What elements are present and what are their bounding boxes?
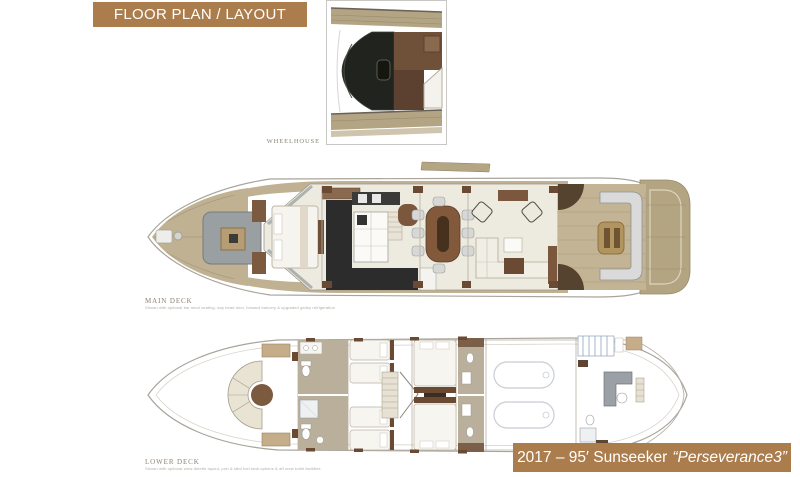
caption-year-model: 2017 – 95′ Sunseeker bbox=[517, 449, 667, 467]
title-banner-label: FLOOR PLAN / LAYOUT bbox=[114, 6, 286, 23]
helm-seat bbox=[377, 60, 390, 80]
caption-boat-name: “Perseverance3” bbox=[672, 449, 787, 467]
ensuite-strip bbox=[458, 338, 484, 452]
main-deck-label: MAIN DECK bbox=[145, 297, 193, 305]
midship-bathrooms bbox=[298, 340, 348, 450]
cockpit-table bbox=[598, 222, 624, 254]
title-banner: FLOOR PLAN / LAYOUT bbox=[93, 2, 307, 27]
sideboard bbox=[498, 190, 528, 201]
bed-foot-bench bbox=[318, 220, 324, 254]
main-deck-fine-print: Shown with optional bar stool seating, d… bbox=[145, 306, 365, 310]
tv-cabinet bbox=[548, 246, 557, 284]
swim-platform bbox=[640, 180, 690, 294]
wheelhouse-plan bbox=[325, 0, 448, 146]
aft-cockpit bbox=[558, 184, 646, 290]
hardtop-bar bbox=[421, 162, 490, 172]
lower-deck-fine-print: Shown with optional crew dinette layout,… bbox=[145, 467, 345, 471]
coffee-table bbox=[504, 258, 524, 274]
wheelhouse-deck-label: WHEELHOUSE bbox=[245, 138, 320, 146]
main-deck-plan bbox=[140, 158, 696, 306]
lower-deck-label: LOWER DECK bbox=[145, 458, 200, 466]
caption-banner: 2017 – 95′ Sunseeker “Perseverance3” bbox=[513, 443, 791, 472]
lower-deck-plan bbox=[140, 330, 696, 458]
brochure-page: FLOOR PLAN / LAYOUT WHEELHOUSE bbox=[0, 0, 800, 477]
crew-bunk bbox=[578, 336, 614, 356]
